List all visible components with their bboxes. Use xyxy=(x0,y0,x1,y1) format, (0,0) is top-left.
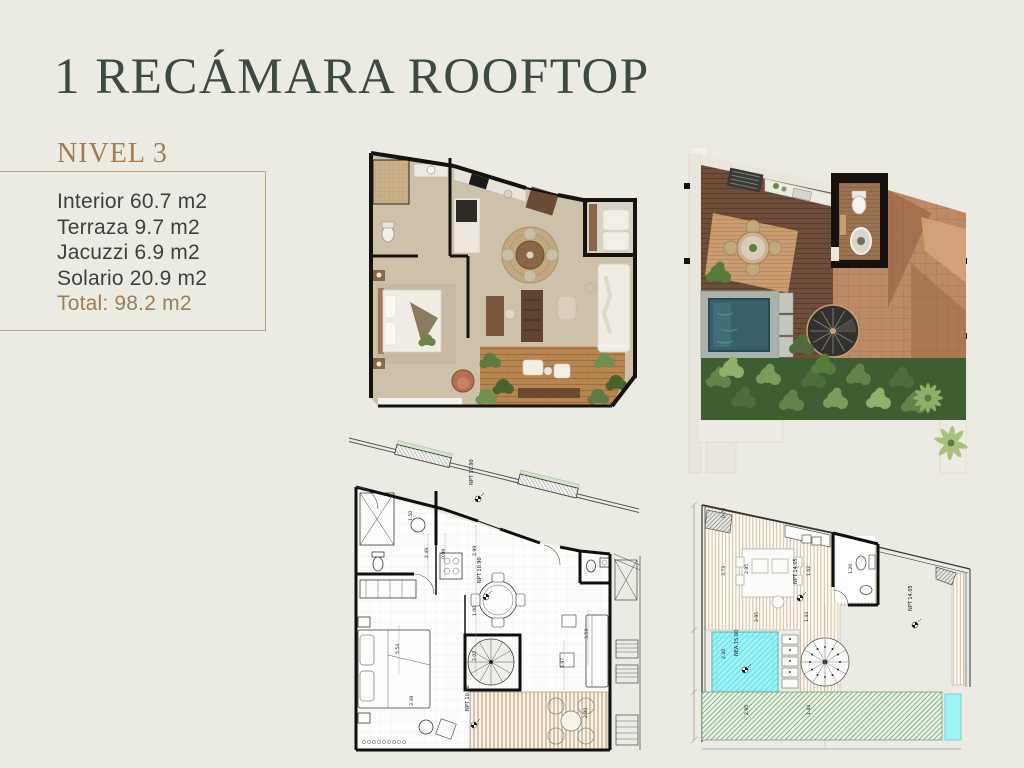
dim-label: 2.95 xyxy=(754,612,760,622)
spiral-stair xyxy=(468,639,514,685)
floorplan-sheet: 1 RECÁMARA ROOFTOP NIVEL 3 Interior 60.7… xyxy=(0,0,1024,768)
toilet xyxy=(856,556,866,570)
dim-label: 2.49 xyxy=(424,548,430,558)
spec-solario: Solario 20.9 m2 xyxy=(57,266,207,292)
lounge-chair xyxy=(523,360,543,375)
kitchen-sink xyxy=(504,190,512,198)
specs-list: Interior 60.7 m2 Terraza 9.7 m2 Jacuzzi … xyxy=(57,189,207,317)
npt-label: NPT 10.90 xyxy=(469,459,475,485)
sofa xyxy=(586,615,608,687)
sofa xyxy=(598,264,630,352)
sink xyxy=(427,166,435,174)
cabinet xyxy=(456,200,477,222)
render-plan-rooftop-svg xyxy=(673,143,973,488)
lounge-chair xyxy=(554,364,570,378)
water-feature xyxy=(945,694,961,740)
toilet xyxy=(382,226,394,242)
dim-label: 3.73 xyxy=(721,566,727,576)
rooftop-bathroom xyxy=(831,173,888,268)
armchair xyxy=(558,296,576,320)
dim-label: 2.95 xyxy=(744,564,750,574)
jacuzzi xyxy=(701,291,793,359)
desk xyxy=(486,296,504,336)
dim-label: 1.44 xyxy=(804,612,810,622)
npt-label: NPT 10.80 xyxy=(465,685,471,711)
spec-jacuzzi: Jacuzzi 6.9 m2 xyxy=(57,240,207,266)
level-label: NIVEL 3 xyxy=(57,138,168,170)
render-plan-interior xyxy=(358,138,640,418)
spec-total: Total: 98.2 m2 xyxy=(57,291,207,317)
dim-label: 0.73 xyxy=(721,508,727,518)
blueprint-rooftop-svg: NPT 14.05 NPT 14.05 NEA 15.00 0.73 3.73 … xyxy=(690,487,975,765)
bench xyxy=(518,388,580,398)
skylight xyxy=(395,441,453,468)
right-ledge xyxy=(952,573,964,685)
dim-label: 2.99 xyxy=(472,546,478,556)
level-marker xyxy=(475,493,484,502)
skylight xyxy=(518,470,580,498)
render-plan-rooftop xyxy=(673,143,973,488)
dim-label: 3.39 xyxy=(409,696,415,706)
toilet xyxy=(373,557,383,571)
spiral-staircase xyxy=(807,305,859,357)
dim-label: 1.26 xyxy=(848,564,854,574)
dim-label: 1.50 xyxy=(408,511,414,521)
dim-label: 2.20 xyxy=(721,649,727,659)
dim-label: 1.44 xyxy=(806,705,812,715)
service-strip xyxy=(614,554,640,750)
dim-label: 5.54 xyxy=(395,644,401,654)
npt-label: NPT 14.05 xyxy=(908,585,914,611)
toilet xyxy=(852,196,866,214)
page-title: 1 RECÁMARA ROOFTOP xyxy=(54,48,650,106)
steps xyxy=(782,635,798,688)
dim-label: 3.53 xyxy=(584,629,590,639)
dim-line-left xyxy=(691,502,697,743)
powder-toilet xyxy=(587,560,596,572)
garden-band xyxy=(701,354,969,461)
specs-box: Interior 60.7 m2 Terraza 9.7 m2 Jacuzzi … xyxy=(0,171,266,331)
dim-label: 2.00 xyxy=(583,708,589,718)
blueprint-plan-interior: NPT 10.90 NPT 10.90 NPT 10.80 2.49 0.99 … xyxy=(348,425,643,758)
dim-label: 2.02 xyxy=(472,651,478,661)
dim-label: 1.62 xyxy=(806,566,812,576)
dim-label: 2.95 xyxy=(744,705,750,715)
dim-label: 1.00 xyxy=(472,606,478,616)
chair xyxy=(419,720,433,734)
side-table xyxy=(585,283,595,293)
planter-band xyxy=(702,692,942,740)
deck-table xyxy=(561,711,581,731)
dim-label: 2.97 xyxy=(560,658,566,668)
spec-terraza: Terraza 9.7 m2 xyxy=(57,215,207,241)
npt-label: NPT 14.05 xyxy=(793,558,799,584)
sink xyxy=(860,586,872,595)
upper-balcony xyxy=(585,200,635,255)
deck xyxy=(470,692,608,750)
level-marker xyxy=(912,619,921,628)
shower xyxy=(373,160,409,204)
bathroom xyxy=(833,533,878,605)
wardrobe xyxy=(360,580,416,598)
bookshelf xyxy=(521,290,543,342)
blueprint-plan-rooftop: NPT 14.05 NPT 14.05 NEA 15.00 0.73 3.73 … xyxy=(690,487,975,765)
npt-label: NPT 10.90 xyxy=(477,557,483,583)
render-plan-interior-svg xyxy=(358,138,640,418)
nea-label: NEA 15.00 xyxy=(734,630,740,656)
dim-label: 0.99 xyxy=(441,549,447,559)
blueprint-interior-svg: NPT 10.90 NPT 10.90 NPT 10.80 2.49 0.99 … xyxy=(348,425,643,758)
spec-interior: Interior 60.7 m2 xyxy=(57,189,207,215)
jacuzzi xyxy=(712,632,778,696)
